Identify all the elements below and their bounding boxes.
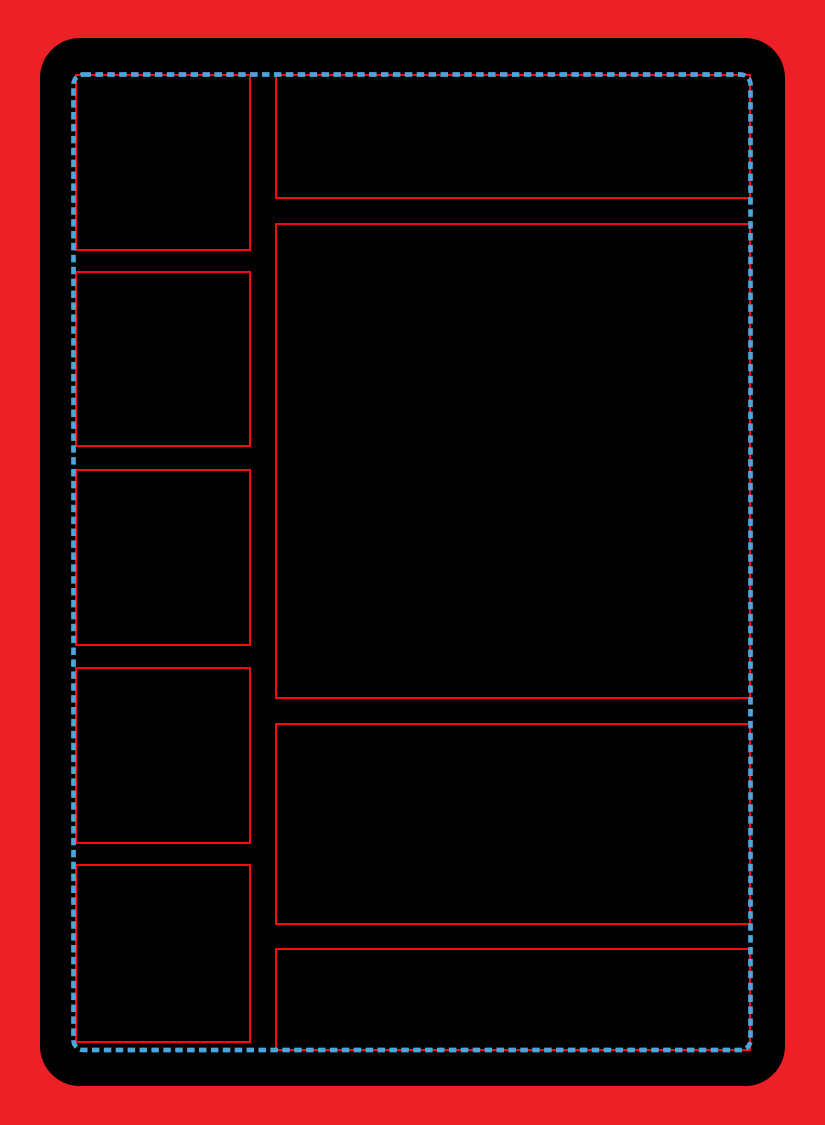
panel-right-bottom-strip [275,948,751,1051]
panel-left-slot-4 [75,667,251,844]
panel-right-header [275,74,751,199]
page-background [0,0,825,1125]
panel-left-slot-5 [75,864,251,1043]
panel-left-slot-2 [75,271,251,447]
panel-right-text-box [275,723,751,925]
panel-layer [0,0,825,1125]
panel-right-main-art [275,223,751,699]
panel-left-slot-1 [75,74,251,251]
panel-left-slot-3 [75,469,251,646]
